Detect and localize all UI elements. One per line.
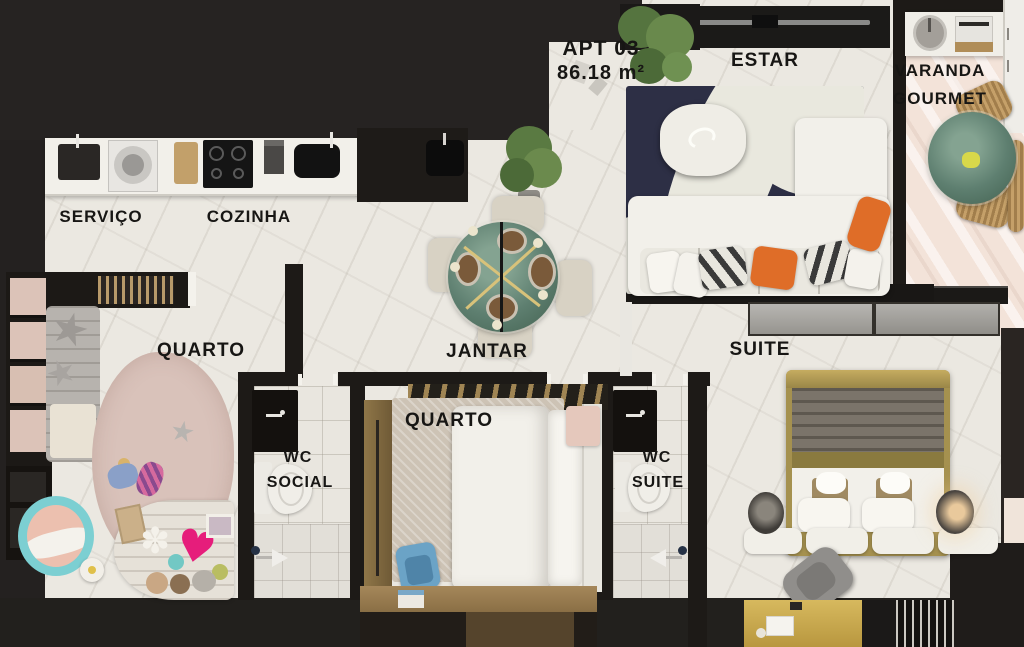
pendant-bulb [533, 238, 543, 248]
quarto-bed-duvet [452, 406, 550, 590]
desk-side-dark [862, 600, 896, 647]
crib-blanket [21, 523, 94, 563]
bedside-lamp [748, 492, 784, 534]
vanity-faucet-dot [280, 410, 285, 415]
toy-frame [206, 514, 234, 538]
shelf-box [10, 366, 46, 406]
dining-chair [556, 260, 592, 316]
room-label-varanda-1: VARANDA [895, 61, 986, 81]
plant-foliage [500, 158, 534, 192]
room-label-estar: ESTAR [731, 50, 799, 72]
wc-social-vanity [252, 390, 298, 452]
pendant-bulb [492, 320, 502, 330]
door-jamb [333, 374, 337, 385]
suite-pillow [798, 498, 850, 532]
vanity-faucet [626, 414, 642, 417]
room-label-quarto-esq: QUARTO [157, 340, 245, 362]
room-label-servico: SERVIÇO [59, 207, 142, 227]
washer-drum-inner [122, 154, 144, 176]
toy-ball-teal [168, 554, 184, 570]
desk-dish [756, 628, 766, 638]
place-setting [528, 254, 556, 290]
vanity-faucet [266, 414, 282, 417]
room-label-cozinha: COZINHA [207, 207, 291, 227]
suite-desk [744, 600, 862, 647]
cabinet-handle [1007, 28, 1009, 40]
shower-valve [251, 546, 260, 555]
room-label-jantar: JANTAR [446, 341, 528, 363]
unit-area: 86.18 m² [557, 62, 645, 85]
pink-cushion [566, 406, 600, 446]
flower-toy-icon: ✽ [140, 524, 170, 560]
burner [231, 146, 246, 161]
suite-door-leaf [620, 302, 632, 376]
cabinet-drawer [10, 472, 46, 502]
table-centerpiece [962, 152, 980, 168]
burner [209, 146, 224, 161]
sofa-pillow-white [843, 247, 883, 290]
shelf-box [10, 410, 46, 452]
island-faucet [443, 133, 446, 145]
door-jamb [298, 374, 302, 385]
varanda-faucet [928, 18, 931, 32]
star-pillow-icon: ★ [168, 416, 198, 448]
kitchen-faucet [330, 132, 333, 148]
pendant-bulb [450, 262, 460, 272]
bench-cushion [872, 528, 934, 554]
bedside-lamp [936, 490, 974, 534]
wardrobe-handle [376, 420, 379, 576]
wall-wcsuite-right [688, 386, 707, 647]
room-label-wc-social-1: WC [284, 449, 313, 467]
door-jamb [683, 374, 687, 385]
desk-chair-seat [404, 554, 434, 586]
vanity-faucet-dot [640, 410, 645, 415]
kitchen-sink [294, 144, 340, 178]
wall-hall-1 [238, 372, 298, 386]
room-label-wc-social-2: SOCIAL [267, 474, 333, 492]
slat-rack [896, 600, 954, 647]
room-label-wc-suite-1: WC [643, 449, 672, 467]
pendant-cable [500, 222, 503, 332]
room-label-suite: SUITE [730, 339, 791, 361]
shower-arm [666, 556, 682, 559]
grill-vent [959, 22, 989, 26]
wc-social-shower [254, 524, 350, 598]
teddy-bear [146, 572, 168, 594]
suite-pillow [862, 498, 914, 532]
mini-pillow [880, 472, 910, 494]
room-label-wc-suite-2: SUITE [632, 474, 684, 492]
sofa-pillow-pattern [697, 245, 748, 291]
kids-bed-blanket [50, 404, 96, 458]
door-jamb [188, 272, 196, 306]
closet-glass-door [748, 302, 874, 336]
outside-block-top-left [0, 0, 549, 140]
kids-wardrobe-clothes [98, 276, 174, 304]
cabinet-handle [1007, 60, 1009, 72]
desk-paper [766, 616, 794, 636]
burner [233, 168, 244, 179]
quarto-desk [360, 586, 597, 612]
quarto-desk-inlay [466, 612, 574, 647]
wall-kidsroom-right [285, 264, 303, 378]
outside-block-bottom-right [950, 543, 1024, 647]
stool-center [88, 566, 96, 574]
shelf-box [10, 278, 46, 318]
service-sink [58, 144, 100, 180]
suite-headboard [786, 370, 950, 388]
room-label-varanda-2: GOURMET [893, 89, 987, 109]
shower-valve [678, 546, 687, 555]
room-label-quarto-centro: QUARTO [405, 410, 493, 432]
suite-gold-band [792, 452, 944, 468]
closet-glass-door [874, 302, 1000, 336]
wall-wcsocial-right [350, 386, 365, 600]
planter-foliage [662, 52, 692, 82]
door-jamb [652, 374, 656, 385]
small-appliance [264, 140, 284, 174]
shower-head-icon [272, 549, 288, 567]
cutting-board [174, 142, 198, 184]
shower-head-icon [650, 549, 666, 567]
desk-knob [790, 602, 802, 610]
unit-label: APT 03 [562, 37, 639, 61]
shelf-box [10, 322, 46, 362]
teddy-bear [192, 570, 216, 592]
suite-blanket [792, 388, 944, 452]
service-faucet [76, 134, 79, 148]
mini-pillow [816, 472, 846, 494]
pendant-bulb [538, 290, 548, 300]
island-sink [426, 140, 464, 176]
grill-base [955, 42, 993, 52]
floor-plan: ★ ★ ★ ✽ ♥ [0, 0, 1024, 647]
wall-hall-4 [688, 372, 710, 386]
tv-soundbar [752, 15, 778, 28]
desk-item [398, 590, 424, 608]
sofa-pillow-orange [749, 245, 798, 291]
wc-suite-vanity [613, 390, 657, 452]
pendant-bulb [468, 226, 478, 236]
teddy-bear [170, 574, 190, 594]
burner [211, 168, 222, 179]
